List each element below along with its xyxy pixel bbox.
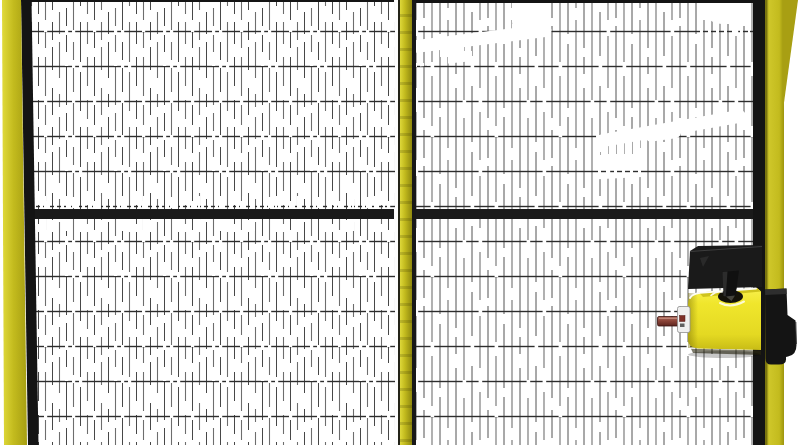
right-frame-bar: [753, 0, 765, 445]
safety-interlock: [650, 240, 800, 372]
right-mesh-pattern: [412, 0, 753, 445]
right-post: [765, 0, 784, 445]
right-mesh-panel: [412, 0, 753, 445]
interlock-housing: [688, 288, 761, 358]
mid-post: [400, 0, 413, 445]
specular-streak-lower-fringe: [596, 129, 646, 179]
actuator-bar: [658, 307, 691, 333]
mid-rail-left: [31, 209, 394, 219]
mid-rail-right: [412, 209, 753, 219]
door-handle: [765, 289, 797, 365]
specular-patch-top-right-fringe: [700, 18, 750, 34]
fence-render: 3D render of yellow-framed machine guard…: [0, 0, 800, 445]
rail-glow-above: [33, 196, 385, 209]
top-frame-right: [412, 0, 753, 3]
rail-glow-below: [33, 219, 385, 231]
right-post-top-face: [783, 0, 798, 110]
specular-patch-top-mid-fringe: [512, 24, 550, 38]
top-frame-left: [31, 0, 394, 2]
right-panel-left-edge: [412, 0, 416, 445]
